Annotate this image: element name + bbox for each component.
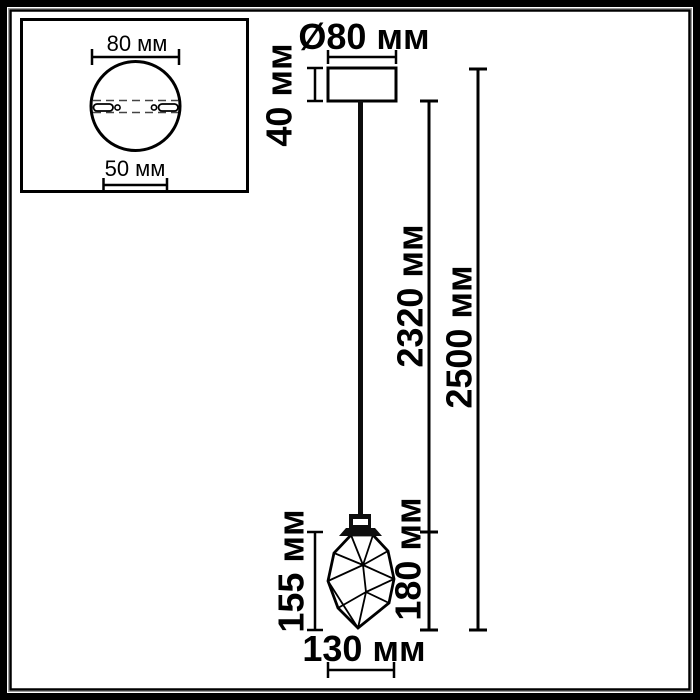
canopy-body [328,68,396,101]
mounting-slot-left [94,104,114,111]
mounting-hole-right [151,105,156,110]
vertical-dimensions: 2320 мм 180 мм 2500 мм [388,69,487,630]
crystal-shade-group [328,514,394,628]
dim-label-shade-width: 130 мм [302,628,425,669]
dim-label-cord-length: 2320 мм [390,224,431,367]
dim-label-canopy-height: 40 мм [259,43,300,146]
pendant-lamp-spec-sheet: 80 мм 50 мм Ø80 мм 40 мм 2320 мм 180 мм [0,0,700,700]
shade-height-dimension: 155 мм [271,509,323,632]
shade-width-dimension: 130 мм [302,628,425,678]
dim-label-shade-with-socket-height: 180 мм [388,497,429,620]
socket-slot-highlight [353,519,368,525]
mounting-hole-left [115,105,120,110]
dim-label-overall-height: 2500 мм [439,265,480,408]
canopy-section: Ø80 мм 40 мм [259,16,430,147]
dim-line-canopy-height [307,68,323,101]
dim-label-shade-height: 155 мм [271,509,312,632]
dim-label-canopy-diameter: Ø80 мм [298,16,429,57]
dimension-drawing: 80 мм 50 мм Ø80 мм 40 мм 2320 мм 180 мм [0,0,700,700]
mounting-slot-right [159,104,179,111]
dim-label-hole-spacing: 50 мм [105,156,166,181]
dim-label-plate-diameter: 80 мм [107,31,168,56]
mount-top-view-inset: 80 мм 50 мм [22,20,248,193]
